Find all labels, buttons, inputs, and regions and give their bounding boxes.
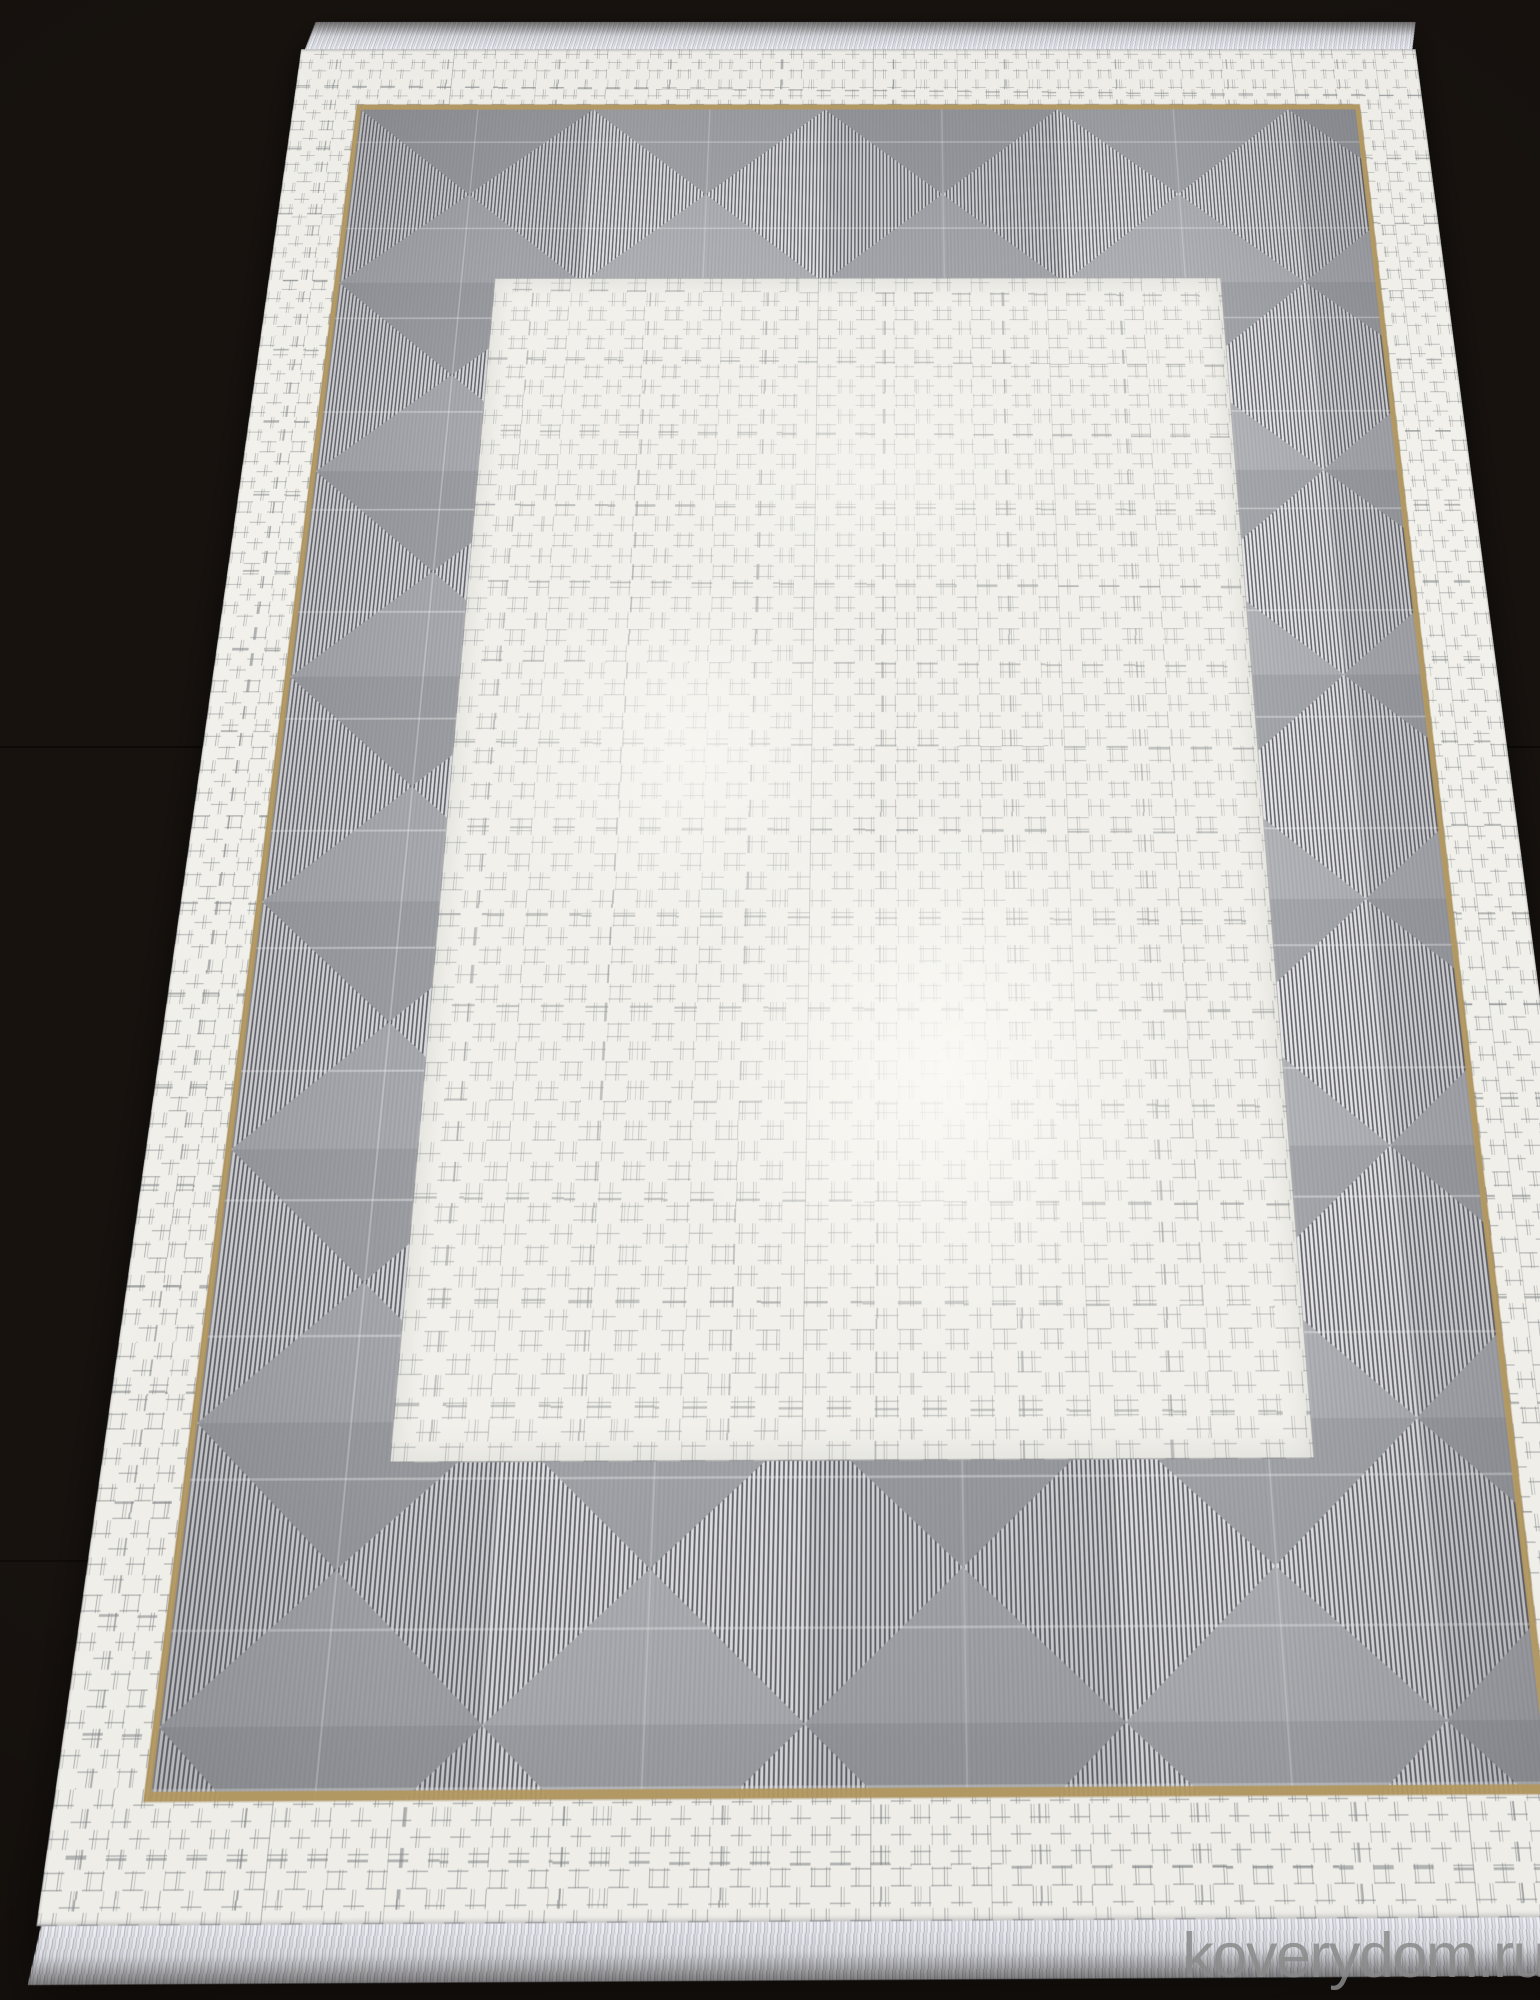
rug-body (36, 49, 1540, 1926)
rug-inner-field (390, 278, 1315, 1463)
rug-fringe-top (304, 22, 1415, 51)
watermark: koverydom.ru (1182, 1925, 1540, 1988)
gold-frame-triangle-band (143, 104, 1540, 1801)
inner-field-distress-texture (390, 278, 1315, 1463)
photo-canvas: { "scene": { "subject": "Rectangular cre… (0, 0, 1540, 2000)
inner-field-sheen (390, 278, 1315, 1463)
